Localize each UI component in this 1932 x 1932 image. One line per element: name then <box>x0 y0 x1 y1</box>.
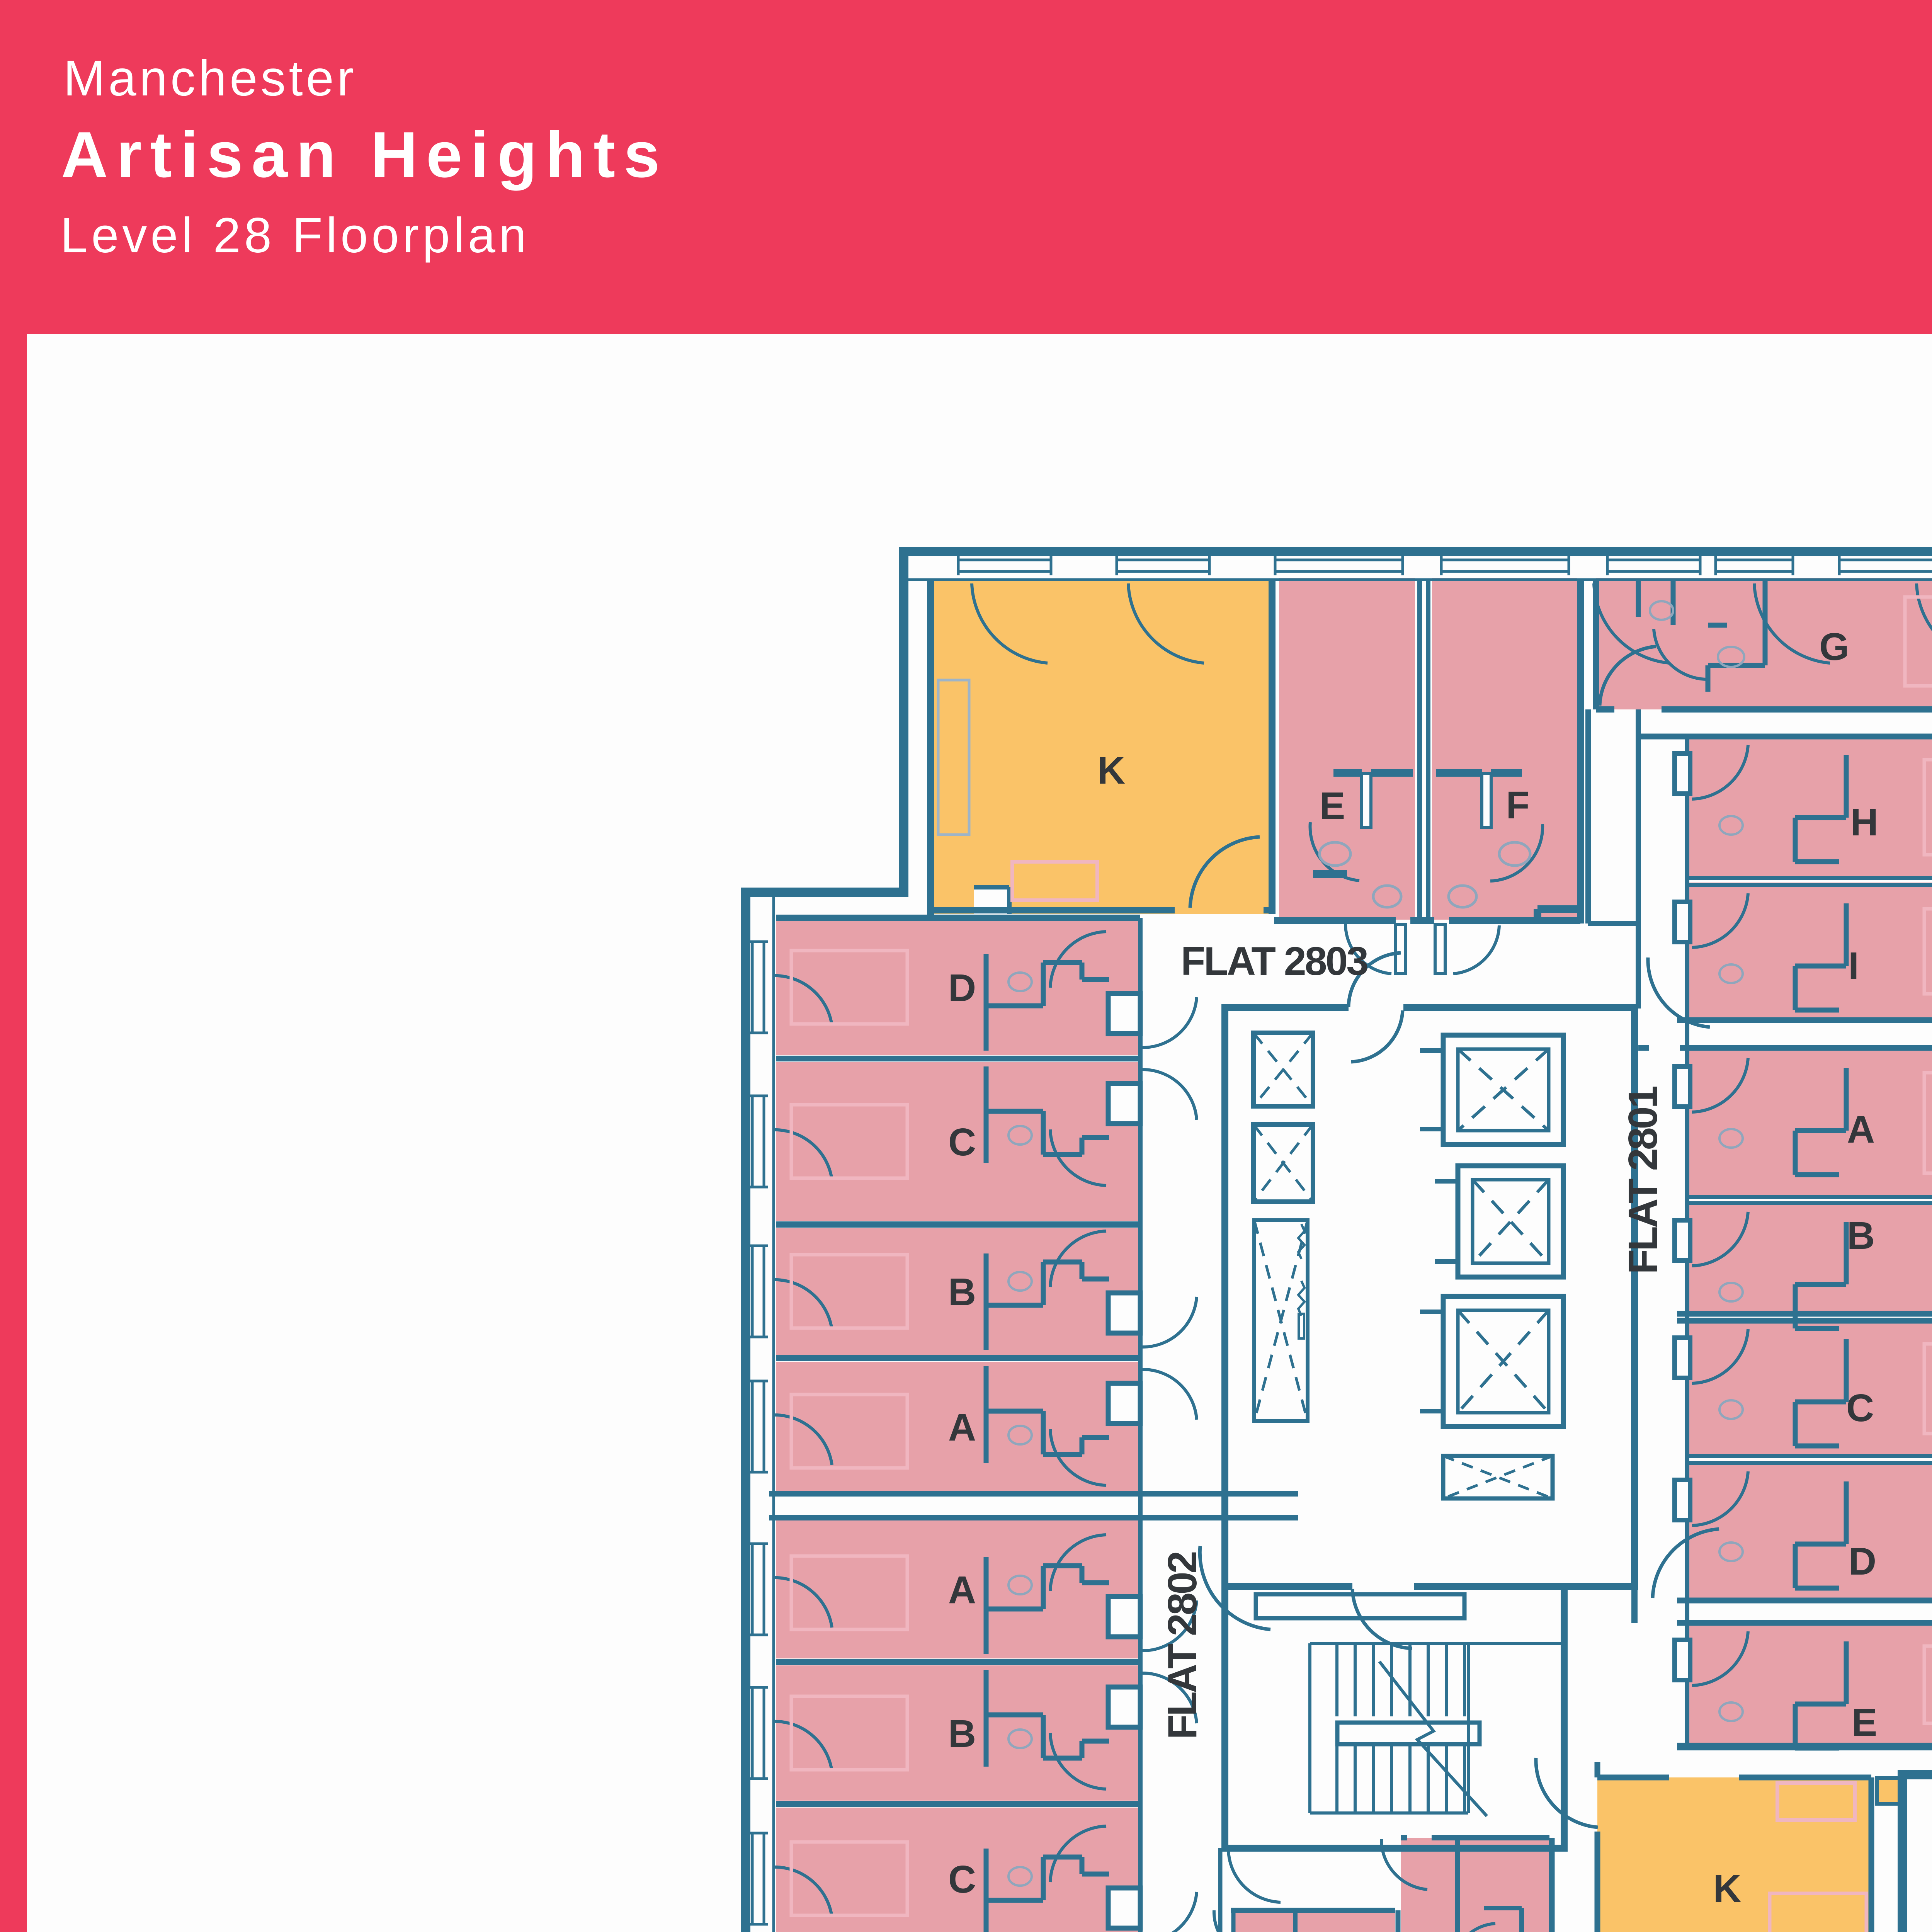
svg-text:FLAT 2802: FLAT 2802 <box>1160 1552 1205 1739</box>
svg-text:H: H <box>1850 801 1878 844</box>
svg-text:FLAT 2801: FLAT 2801 <box>1620 1087 1666 1274</box>
svg-text:B: B <box>1847 1214 1875 1257</box>
svg-text:E: E <box>1852 1701 1878 1744</box>
svg-text:A: A <box>948 1568 976 1612</box>
svg-text:G: G <box>1819 625 1849 668</box>
svg-text:Manchester: Manchester <box>63 50 357 106</box>
svg-text:F: F <box>1506 784 1529 827</box>
svg-text:K: K <box>1097 749 1125 792</box>
svg-text:B: B <box>948 1712 976 1755</box>
svg-text:FLAT 2803: FLAT 2803 <box>1181 939 1367 984</box>
svg-text:C: C <box>948 1858 976 1901</box>
svg-text:A: A <box>1847 1108 1875 1151</box>
svg-text:Level 28 Floorplan: Level 28 Floorplan <box>60 208 530 263</box>
svg-text:C: C <box>948 1121 976 1164</box>
svg-text:D: D <box>948 966 976 1010</box>
svg-text:I: I <box>1848 944 1859 988</box>
svg-text:Artisan Heights: Artisan Heights <box>61 118 668 191</box>
svg-text:E: E <box>1320 784 1345 828</box>
svg-text:K: K <box>1713 1867 1741 1910</box>
svg-text:A: A <box>948 1406 976 1449</box>
svg-text:B: B <box>948 1270 976 1314</box>
svg-text:D: D <box>1849 1540 1876 1583</box>
svg-text:C: C <box>1846 1386 1874 1430</box>
